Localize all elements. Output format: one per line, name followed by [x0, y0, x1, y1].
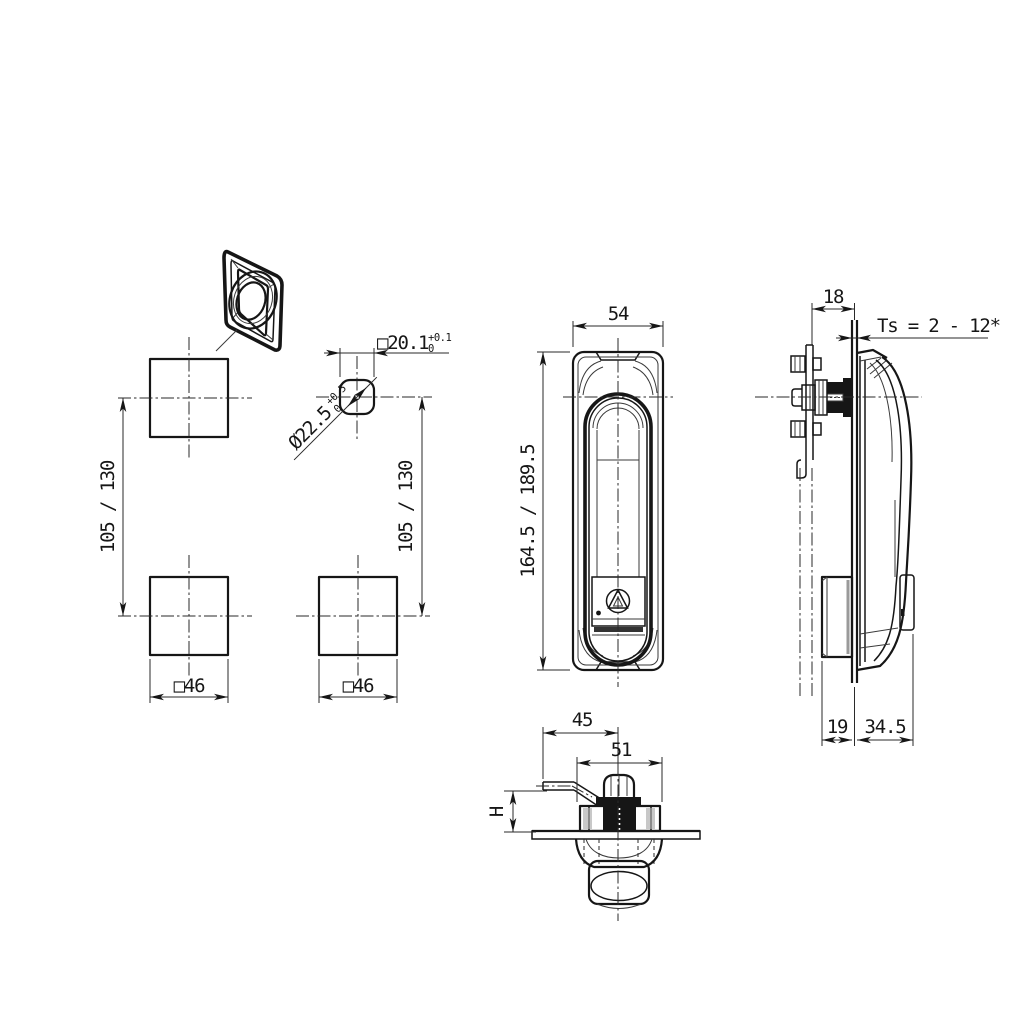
handle-head [576, 839, 662, 909]
lock-body [580, 806, 660, 831]
rear-box [822, 577, 852, 657]
dim-cam-offset: 45 [543, 709, 618, 779]
drawing-canvas: 105 / 130 105 / 130 □46 □46 □20. [0, 0, 1024, 1024]
dim-rear-clearance-label: 19 [827, 716, 848, 738]
dim-panel-thickness: Ts = 2 - 12* [836, 315, 1000, 338]
dim-cam-offset-label: 45 [572, 709, 592, 731]
dim-spacing-right: 105 / 130 [395, 397, 422, 616]
dim-cutout-square: □20.1 +0.1 0 [324, 332, 451, 377]
dim-grip-height: H [486, 791, 547, 832]
dim-body-width-label: 51 [611, 739, 632, 761]
bottom-view: 45 51 H [486, 709, 700, 921]
locking-cam [536, 782, 601, 806]
dim-cutout-diameter-label: Ø22.5 [284, 403, 336, 455]
front-view: 54 164.5 / 189.5 [517, 303, 673, 687]
leader-line [216, 330, 237, 351]
dim-rear-depth: 18 [812, 286, 855, 345]
dim-spacing-right-label: 105 / 130 [395, 460, 417, 553]
top-screw [791, 356, 805, 372]
seal-dot [596, 611, 601, 616]
side-view: 18 Ts = 2 - 12* 19 34.5 [755, 286, 1000, 746]
dim-grip-height-label: H [486, 806, 508, 817]
technical-drawing: 105 / 130 105 / 130 □46 □46 □20. [0, 0, 1024, 1024]
bracket-foot [797, 460, 806, 478]
escutcheon-isometric-view [216, 252, 284, 351]
dim-panel-thickness-label: Ts = 2 - 12* [877, 315, 1000, 337]
dim-rear-depth-label: 18 [823, 286, 844, 308]
dim-front-height-label: 164.5 / 189.5 [517, 444, 539, 577]
dim-rear-clearance: 19 34.5 [822, 634, 913, 746]
dim-cutout-square-label: □20.1 [377, 332, 429, 354]
dim-cutout-square-tol-lower: 0 [428, 343, 434, 355]
cam-bracket [791, 345, 821, 478]
dim-front-protrusion-label: 34.5 [865, 716, 906, 738]
dim-front-width-label: 54 [608, 303, 629, 325]
flange-plate [532, 831, 700, 839]
dim-spacing-left: 105 / 130 [97, 398, 123, 616]
cutout-pattern-view: 105 / 130 105 / 130 □46 □46 □20. [97, 332, 451, 703]
dim-spacing-left-label: 105 / 130 [97, 460, 119, 553]
dim-square-right-label: □46 [343, 675, 374, 697]
dim-front-height: 164.5 / 189.5 [517, 352, 570, 670]
bottom-screw [791, 421, 805, 437]
dim-cutout-diameter: Ø22.5 +0.5 0 [279, 362, 378, 461]
dim-square-left-label: □46 [174, 675, 205, 697]
